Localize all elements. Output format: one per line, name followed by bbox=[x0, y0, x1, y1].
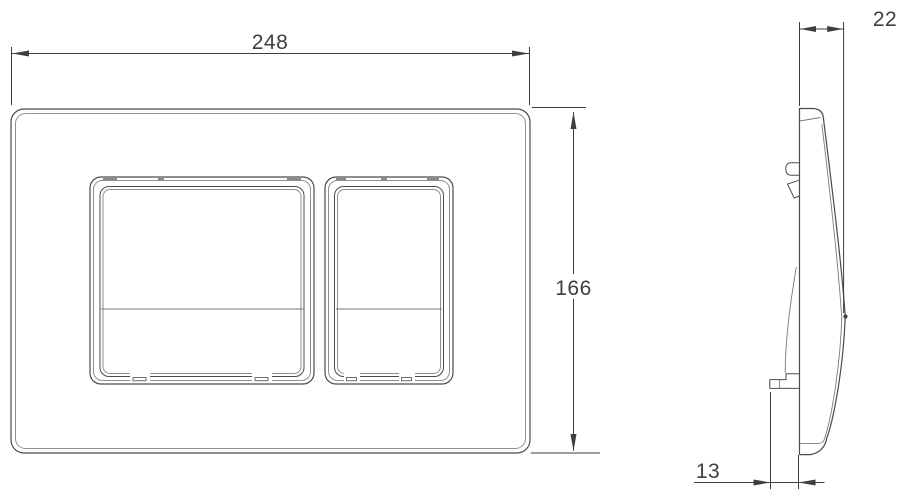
flush-plate-technical-drawing: 248 166 bbox=[0, 0, 915, 500]
front-face-inner-curve bbox=[822, 124, 842, 442]
large-button-face-inner bbox=[103, 190, 301, 374]
rear-profile-curve bbox=[785, 267, 796, 373]
depth-dimension-label: 22 bbox=[873, 8, 897, 31]
large-button-bezel-outer bbox=[90, 177, 314, 384]
height-dimension-label: 166 bbox=[555, 277, 592, 300]
plate-outline bbox=[11, 109, 530, 453]
clip-mark bbox=[336, 178, 346, 180]
clip-mark bbox=[381, 178, 387, 180]
small-button-face-outer bbox=[335, 187, 444, 377]
arrowhead-left-tip bbox=[799, 480, 816, 486]
large-button-face-outer bbox=[100, 187, 304, 377]
upper-retaining-hook bbox=[788, 180, 800, 198]
front-view: 248 166 bbox=[11, 31, 600, 453]
arrowhead-down bbox=[571, 434, 577, 451]
clip-mark bbox=[427, 178, 439, 180]
upper-mounting-tab bbox=[786, 163, 800, 175]
large-button-bezel-inner bbox=[94, 181, 311, 381]
arrowhead-left bbox=[800, 26, 816, 32]
offset-dimension: 13 bbox=[694, 392, 825, 489]
large-flush-button bbox=[90, 177, 314, 384]
bottom-lip-line bbox=[800, 441, 824, 444]
arrowhead-right-tip bbox=[754, 480, 771, 486]
height-dimension: 166 bbox=[531, 108, 600, 454]
technical-drawing-page: 248 166 bbox=[0, 0, 915, 500]
offset-dimension-label: 13 bbox=[696, 460, 720, 483]
tangent-point-dot bbox=[843, 314, 847, 318]
side-profile bbox=[770, 108, 848, 455]
small-button-bezel-outer bbox=[325, 177, 453, 384]
small-button-bezel-inner bbox=[329, 181, 450, 381]
arrowhead-up bbox=[571, 112, 577, 129]
width-dimension-label: 248 bbox=[252, 31, 289, 54]
plate-outer-edge bbox=[11, 109, 530, 453]
plate-front-contour bbox=[800, 109, 846, 455]
lower-mounting-hook bbox=[770, 374, 800, 389]
small-flush-button bbox=[325, 177, 453, 384]
top-chamfer-line bbox=[800, 118, 821, 122]
side-view: 22 13 bbox=[694, 8, 897, 489]
depth-dimension: 22 bbox=[800, 8, 898, 313]
arrowhead-left bbox=[12, 51, 29, 57]
clip-mark bbox=[158, 178, 164, 180]
width-dimension: 248 bbox=[12, 31, 530, 105]
clip-mark bbox=[103, 178, 117, 180]
arrowhead-right bbox=[512, 51, 529, 57]
clip-mark bbox=[287, 178, 301, 180]
arrowhead-right bbox=[827, 26, 843, 32]
small-button-face-inner bbox=[338, 190, 441, 374]
